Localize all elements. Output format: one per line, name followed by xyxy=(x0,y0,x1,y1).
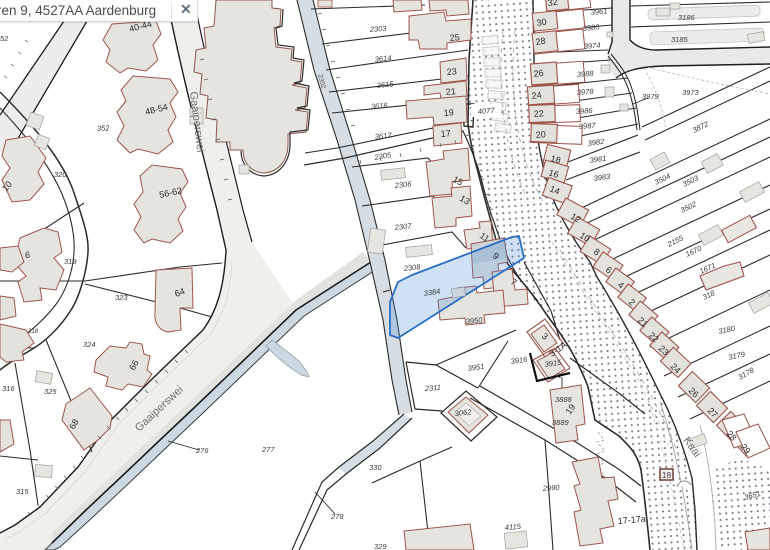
svg-text:20: 20 xyxy=(535,129,546,140)
svg-text:3988: 3988 xyxy=(577,69,595,79)
svg-text:28: 28 xyxy=(535,36,546,47)
svg-text:316: 316 xyxy=(2,384,15,393)
svg-text:318: 318 xyxy=(28,329,39,335)
svg-text:3979: 3979 xyxy=(642,92,660,101)
svg-text:2311: 2311 xyxy=(424,383,442,393)
svg-text:3615: 3615 xyxy=(376,79,394,90)
svg-text:320: 320 xyxy=(54,170,67,179)
svg-text:19: 19 xyxy=(443,107,454,118)
svg-text:22: 22 xyxy=(533,108,544,119)
svg-text:23: 23 xyxy=(446,66,457,77)
svg-text:2307: 2307 xyxy=(393,221,412,232)
svg-text:3974: 3974 xyxy=(583,41,600,51)
svg-text:25: 25 xyxy=(449,32,460,43)
svg-text:18: 18 xyxy=(662,470,672,480)
svg-text:3961: 3961 xyxy=(590,6,608,17)
svg-text:30: 30 xyxy=(536,17,547,28)
svg-text:3614: 3614 xyxy=(374,53,392,64)
svg-text:3978: 3978 xyxy=(577,87,595,97)
svg-text:3973: 3973 xyxy=(682,88,700,97)
svg-text:3986: 3986 xyxy=(576,106,594,116)
svg-text:2308: 2308 xyxy=(402,262,421,273)
svg-text:24: 24 xyxy=(531,90,542,101)
svg-text:4077: 4077 xyxy=(478,106,496,116)
svg-text:330: 330 xyxy=(369,463,382,472)
svg-text:329: 329 xyxy=(374,542,387,550)
svg-text:3062: 3062 xyxy=(454,407,472,418)
svg-text:319: 319 xyxy=(64,257,77,266)
svg-text:278: 278 xyxy=(330,512,344,521)
svg-text:277: 277 xyxy=(261,445,275,454)
svg-text:4115: 4115 xyxy=(505,522,523,532)
svg-text:32: 32 xyxy=(547,0,558,8)
svg-text:3950: 3950 xyxy=(465,315,483,326)
svg-text:3185: 3185 xyxy=(671,35,689,44)
svg-text:52: 52 xyxy=(0,34,9,43)
svg-text:6: 6 xyxy=(25,250,30,260)
svg-text:3617: 3617 xyxy=(375,131,393,141)
svg-text:21: 21 xyxy=(445,86,456,97)
svg-text:325: 325 xyxy=(44,387,57,396)
svg-text:3987: 3987 xyxy=(579,121,597,131)
svg-text:3889: 3889 xyxy=(552,418,570,427)
svg-text:17: 17 xyxy=(440,128,451,139)
svg-text:323: 323 xyxy=(115,293,128,302)
svg-text:2303: 2303 xyxy=(369,24,388,34)
svg-text:324: 324 xyxy=(83,340,96,349)
svg-text:276: 276 xyxy=(195,446,209,455)
svg-text:3980: 3980 xyxy=(582,22,600,33)
svg-text:3186: 3186 xyxy=(678,13,696,22)
svg-text:352: 352 xyxy=(97,123,111,133)
svg-text:3616: 3616 xyxy=(371,101,389,111)
svg-text:2990: 2990 xyxy=(542,483,561,493)
svg-text:2306: 2306 xyxy=(393,179,412,190)
svg-text:3888: 3888 xyxy=(555,395,573,404)
svg-text:315: 315 xyxy=(16,487,29,496)
svg-text:26: 26 xyxy=(533,68,544,79)
